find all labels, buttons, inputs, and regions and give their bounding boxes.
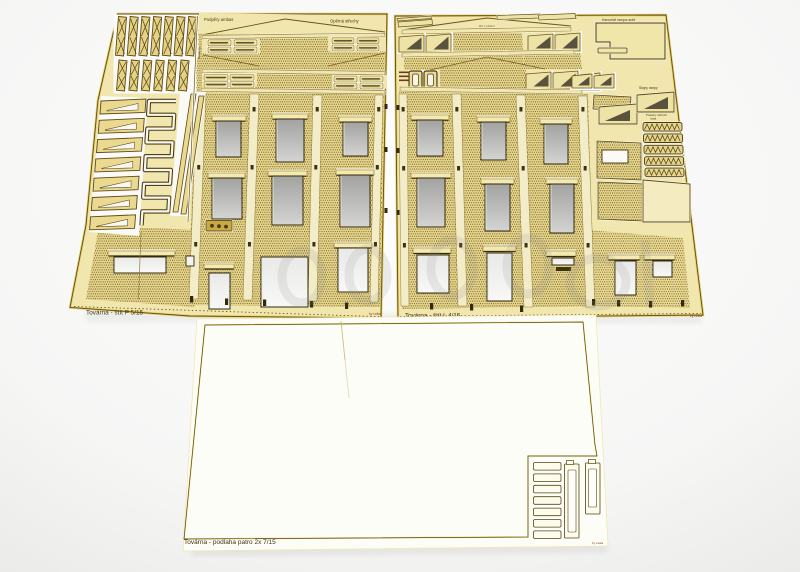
svg-text:Podpěry ambas: Podpěry ambas [204, 17, 233, 22]
svg-text:Továrna - podlaha patro 2x 7/1: Továrna - podlaha patro 2x 7/15 [184, 539, 276, 546]
svg-text:by Lelka: by Lelka [369, 312, 381, 316]
svg-text:Stojny rampy: Stojny rampy [639, 86, 658, 90]
svg-text:by Lelka: by Lelka [592, 541, 604, 545]
svg-text:Kancelář rampa autě: Kancelář rampa autě [602, 18, 635, 22]
svg-text:mata: mata [650, 117, 657, 121]
svg-text:Opěrná střechy: Opěrná střechy [330, 19, 360, 24]
svg-text:by Lelka: by Lelka [690, 314, 702, 318]
svg-text:štít L přední: štít L přední [479, 24, 495, 28]
svg-text:Továrna - štít P 5/15: Továrna - štít P 5/15 [86, 310, 144, 317]
